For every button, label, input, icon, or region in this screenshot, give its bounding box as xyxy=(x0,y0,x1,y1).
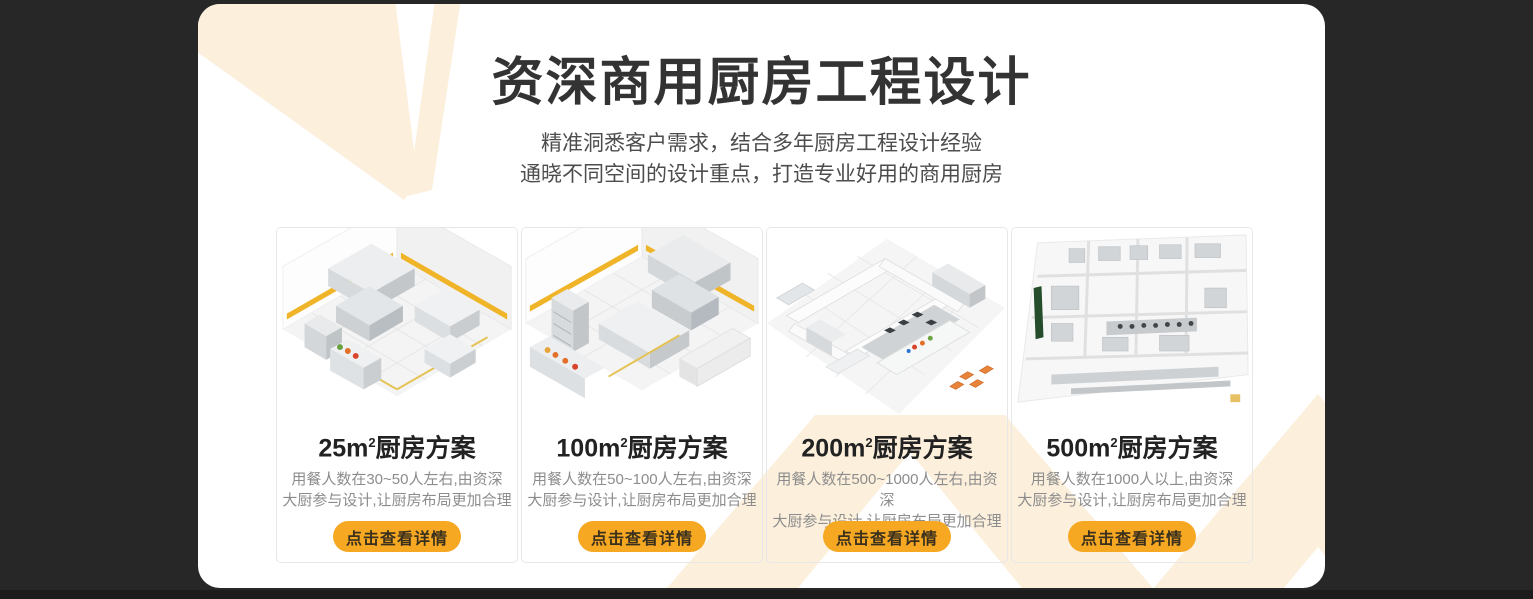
plan-card-title: 200m2厨房方案 xyxy=(767,428,1007,463)
kitchen-render-25m2-image xyxy=(277,228,517,415)
plan-card-100m2: 100m2厨房方案 用餐人数在50~100人左右,由资深大厨参与设计,让厨房布局… xyxy=(521,227,763,563)
plan-card-500m2: 500m2厨房方案 用餐人数在1000人以上,由资深大厨参与设计,让厨房布局更加… xyxy=(1011,227,1253,563)
kitchen-render-200m2-image xyxy=(767,228,1007,415)
kitchen-render-500m2-image xyxy=(1012,228,1252,415)
content-panel: 资深商用厨房工程设计 精准洞悉客户需求，结合多年厨房工程设计经验 通晓不同空间的… xyxy=(198,4,1325,588)
view-details-button[interactable]: 点击查看详情 xyxy=(578,521,706,552)
page-title: 资深商用厨房工程设计 xyxy=(198,54,1325,112)
page-background: 资深商用厨房工程设计 精准洞悉客户需求，结合多年厨房工程设计经验 通晓不同空间的… xyxy=(0,0,1533,599)
section-subtitle-line1: 精准洞悉客户需求，结合多年厨房工程设计经验 xyxy=(198,128,1325,159)
kitchen-render-25m2 xyxy=(277,228,517,415)
plan-card-title: 500m2厨房方案 xyxy=(1012,428,1252,463)
section-subtitle-line2: 通晓不同空间的设计重点，打造专业好用的商用厨房 xyxy=(198,159,1325,190)
kitchen-render-100m2-image xyxy=(522,228,762,415)
view-details-button[interactable]: 点击查看详情 xyxy=(333,521,461,552)
plan-card-description: 用餐人数在1000人以上,由资深大厨参与设计,让厨房布局更加合理 xyxy=(1012,469,1252,511)
plan-card-25m2: 25m2厨房方案 用餐人数在30~50人左右,由资深大厨参与设计,让厨房布局更加… xyxy=(276,227,518,563)
view-details-button[interactable]: 点击查看详情 xyxy=(1068,521,1196,552)
bottom-strip xyxy=(0,590,1533,599)
kitchen-render-200m2 xyxy=(767,228,1007,415)
plan-card-description: 用餐人数在50~100人左右,由资深大厨参与设计,让厨房布局更加合理 xyxy=(522,469,762,511)
plan-card-title: 100m2厨房方案 xyxy=(522,428,762,463)
plan-card-description: 用餐人数在30~50人左右,由资深大厨参与设计,让厨房布局更加合理 xyxy=(277,469,517,511)
section-header: 资深商用厨房工程设计 精准洞悉客户需求，结合多年厨房工程设计经验 通晓不同空间的… xyxy=(198,4,1325,190)
plan-card-200m2: 200m2厨房方案 用餐人数在500~1000人左右,由资深大厨参与设计,让厨房… xyxy=(766,227,1008,563)
kitchen-render-500m2 xyxy=(1012,228,1252,415)
kitchen-render-100m2 xyxy=(522,228,762,415)
plan-cards-row: 25m2厨房方案 用餐人数在30~50人左右,由资深大厨参与设计,让厨房布局更加… xyxy=(276,227,1253,563)
view-details-button[interactable]: 点击查看详情 xyxy=(823,521,951,552)
plan-card-title: 25m2厨房方案 xyxy=(277,428,517,463)
